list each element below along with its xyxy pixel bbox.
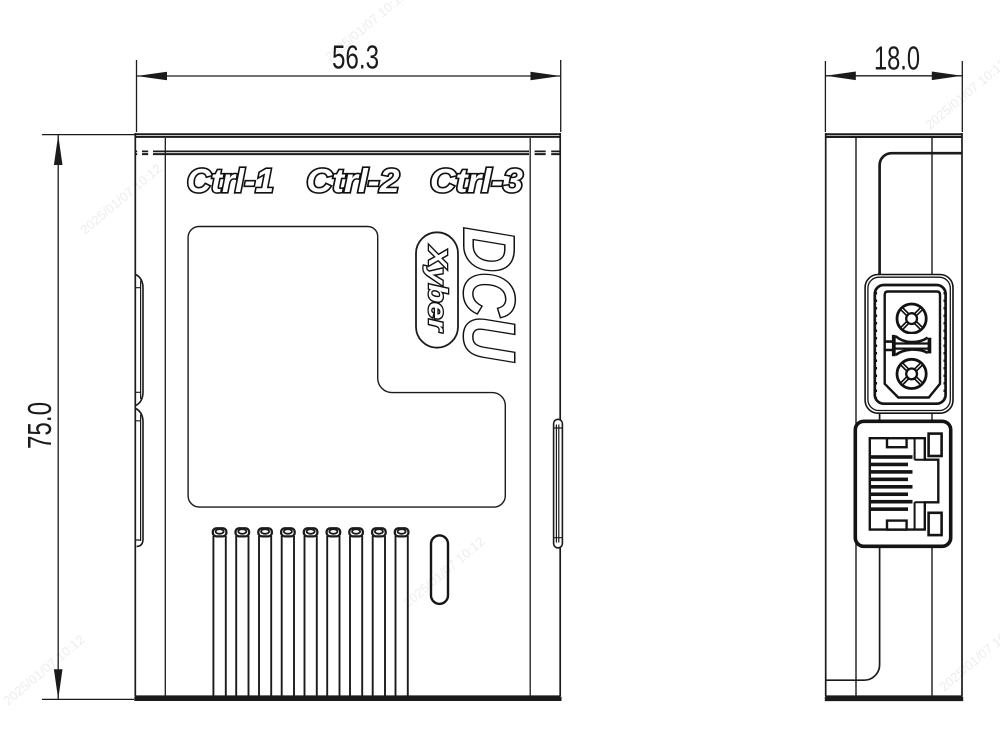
svg-text:Ctrl-3: Ctrl-3	[430, 162, 523, 199]
svg-text:75.0: 75.0	[21, 402, 58, 449]
svg-text:56.3: 56.3	[332, 39, 379, 76]
svg-text:18.0: 18.0	[874, 40, 920, 77]
svg-text:DCU: DCU	[449, 228, 528, 362]
svg-text:Xyber: Xyber	[423, 245, 453, 334]
svg-text:Ctrl-1: Ctrl-1	[187, 162, 274, 199]
svg-text:Ctrl-2: Ctrl-2	[306, 162, 400, 199]
